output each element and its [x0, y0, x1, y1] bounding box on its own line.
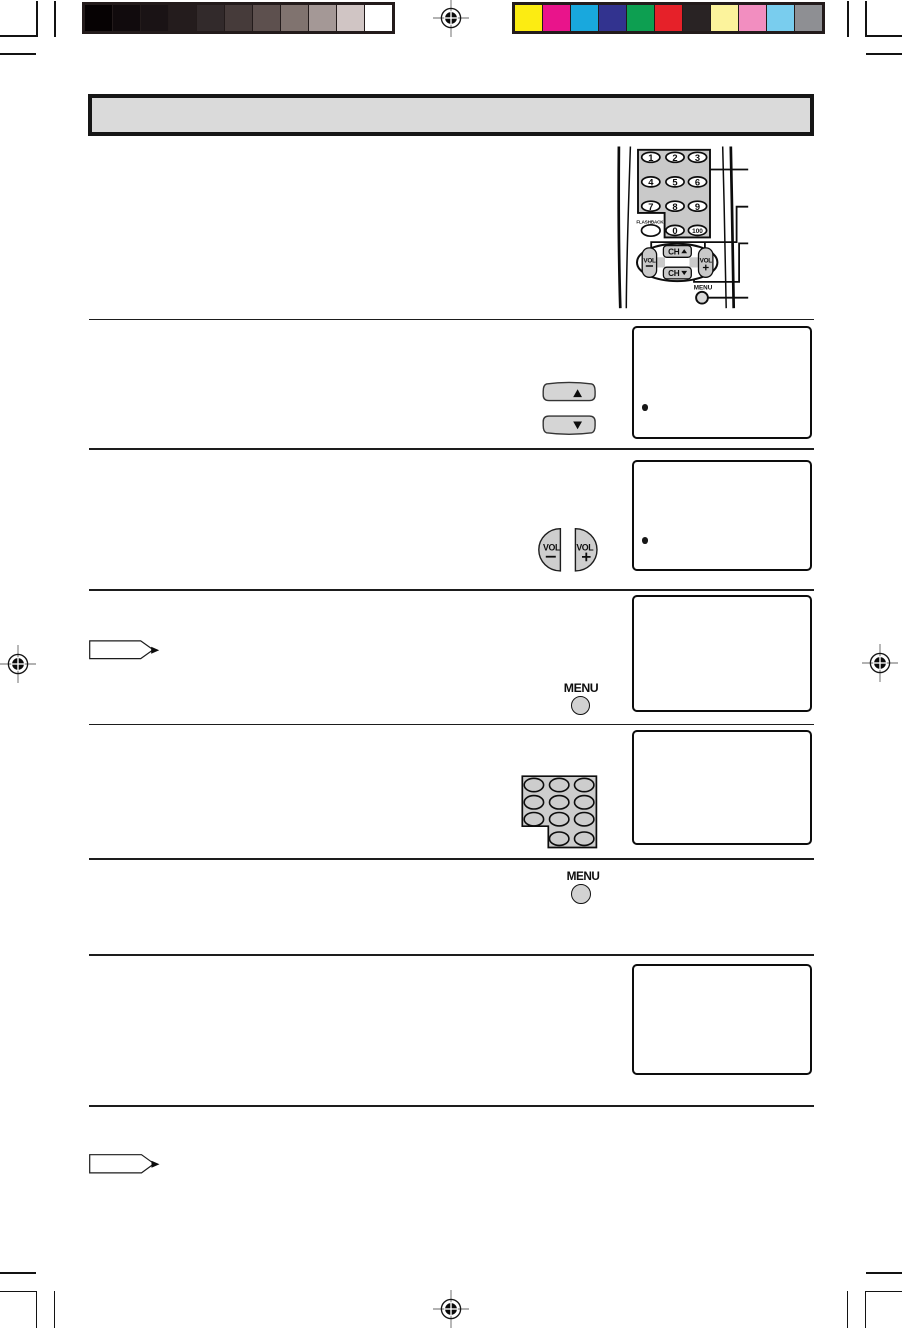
svg-text:VOL: VOL — [576, 543, 594, 553]
svg-text:8: 8 — [672, 201, 677, 212]
svg-text:2: 2 — [672, 152, 677, 163]
svg-text:0: 0 — [672, 225, 677, 236]
svg-text:VOL: VOL — [543, 543, 561, 553]
svg-text:7: 7 — [648, 201, 653, 212]
svg-text:FLASHBACK: FLASHBACK — [636, 219, 664, 224]
svg-text:3: 3 — [695, 152, 700, 163]
svg-text:4: 4 — [648, 177, 654, 188]
svg-text:9: 9 — [695, 201, 700, 212]
svg-text:100: 100 — [692, 228, 703, 235]
svg-text:5: 5 — [672, 177, 677, 188]
svg-text:CH: CH — [668, 269, 680, 278]
svg-text:6: 6 — [695, 177, 700, 188]
svg-text:1: 1 — [648, 152, 653, 163]
svg-text:CH: CH — [668, 248, 680, 257]
svg-text:VOL: VOL — [643, 257, 656, 264]
svg-text:MENU: MENU — [694, 285, 713, 292]
svg-text:VOL: VOL — [700, 257, 713, 264]
